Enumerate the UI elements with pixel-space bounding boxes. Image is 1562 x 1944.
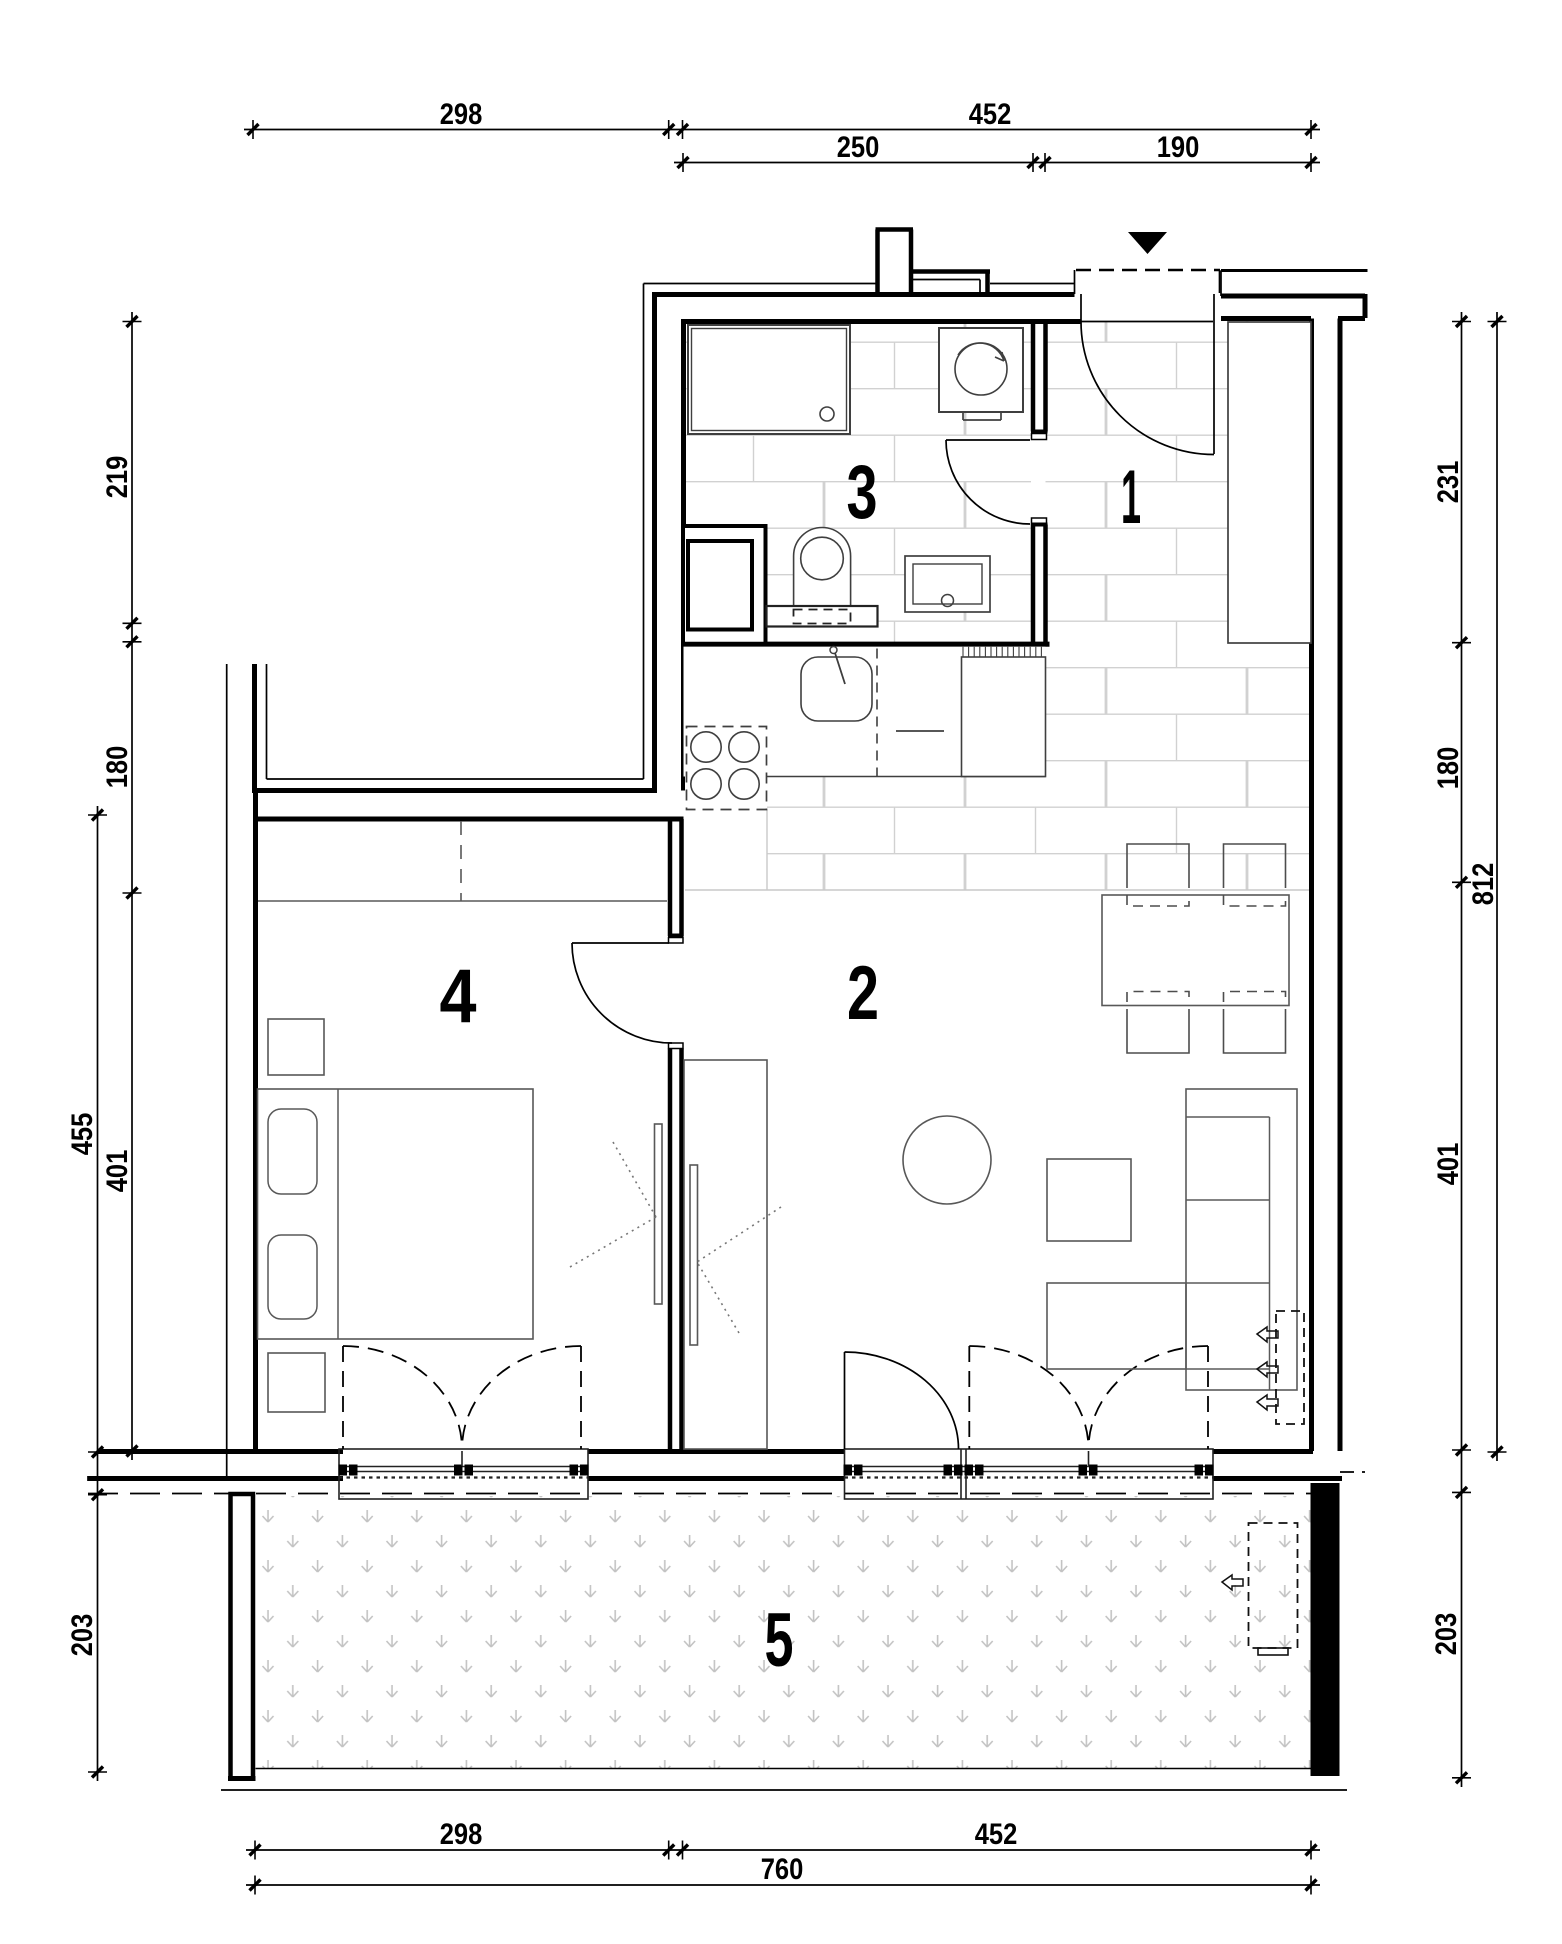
svg-text:452: 452 — [969, 98, 1012, 131]
svg-text:455: 455 — [66, 1113, 99, 1156]
svg-text:298: 298 — [440, 1818, 483, 1851]
svg-text:250: 250 — [837, 131, 880, 164]
svg-text:3: 3 — [847, 450, 878, 535]
svg-text:760: 760 — [761, 1853, 804, 1886]
svg-text:401: 401 — [1432, 1143, 1465, 1186]
svg-text:203: 203 — [1430, 1613, 1463, 1656]
svg-text:1: 1 — [1121, 455, 1141, 540]
svg-text:190: 190 — [1157, 131, 1200, 164]
svg-text:5: 5 — [765, 1598, 794, 1683]
svg-text:180: 180 — [101, 746, 134, 789]
svg-text:2: 2 — [847, 951, 879, 1036]
svg-text:4: 4 — [440, 954, 477, 1039]
svg-text:231: 231 — [1432, 461, 1465, 504]
svg-text:219: 219 — [101, 456, 134, 499]
svg-text:203: 203 — [66, 1614, 99, 1657]
svg-text:452: 452 — [975, 1818, 1018, 1851]
svg-text:812: 812 — [1467, 863, 1500, 906]
svg-text:401: 401 — [101, 1150, 134, 1193]
svg-text:298: 298 — [440, 98, 483, 131]
svg-text:180: 180 — [1432, 747, 1465, 790]
